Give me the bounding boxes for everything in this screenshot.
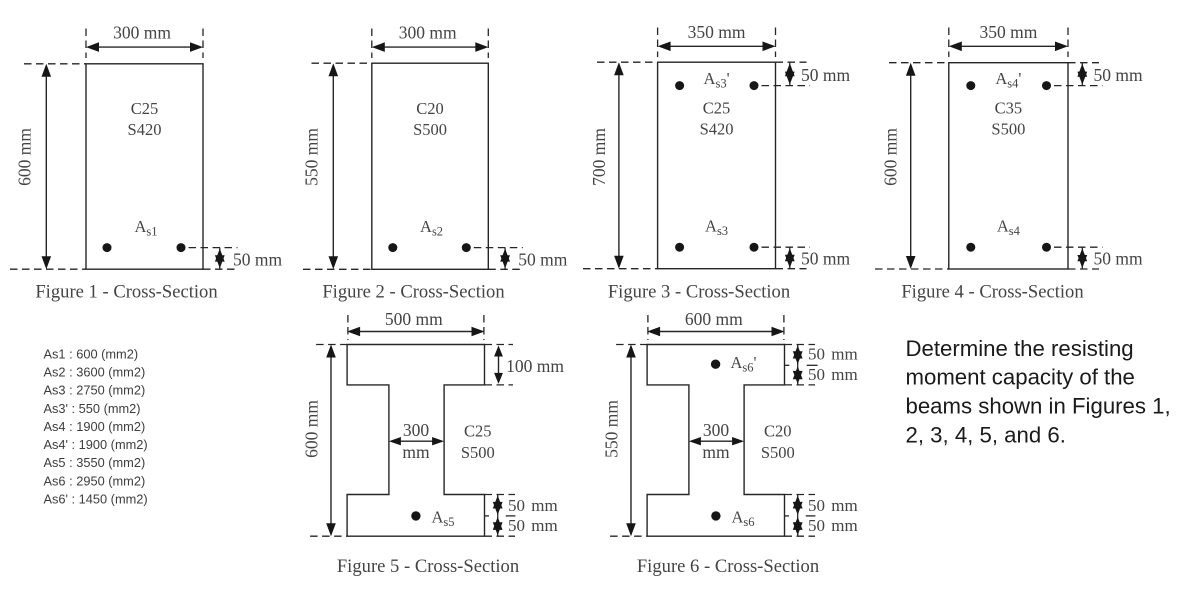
svg-text:C35: C35 — [995, 99, 1023, 118]
svg-text:As5: As5 — [432, 508, 455, 530]
svg-text:50 mm: 50 mm — [801, 248, 850, 268]
svg-text:300 mm: 300 mm — [399, 23, 457, 43]
svg-text:As2: As2 — [420, 217, 443, 239]
svg-text:As4': As4' — [995, 69, 1021, 91]
svg-text:Determine the resisting: Determine the resisting — [906, 336, 1134, 361]
svg-text:beams shown in Figures 1,: beams shown in Figures 1, — [906, 394, 1171, 419]
svg-text:C25: C25 — [464, 422, 492, 441]
svg-text:As4' : 1900 (mm2): As4' : 1900 (mm2) — [44, 437, 148, 452]
svg-text:As6: As6 — [732, 508, 755, 530]
svg-text:550 mm: 550 mm — [302, 128, 322, 186]
svg-text:S420: S420 — [700, 119, 734, 138]
svg-text:moment capacity of the: moment capacity of the — [906, 365, 1135, 390]
svg-text:As1: As1 — [134, 217, 157, 239]
svg-text:C20: C20 — [764, 422, 792, 441]
svg-text:Figure 3 - Cross-Section: Figure 3 - Cross-Section — [608, 281, 791, 302]
svg-text:As2 : 3600 (mm2): As2 : 3600 (mm2) — [44, 364, 146, 379]
svg-text:As6' : 1450 (mm2): As6' : 1450 (mm2) — [44, 492, 148, 507]
svg-text:S420: S420 — [128, 120, 162, 139]
svg-text:As6': As6' — [731, 353, 757, 375]
svg-text:As3 : 2750 (mm2): As3 : 2750 (mm2) — [44, 383, 146, 398]
svg-text:C25: C25 — [703, 99, 731, 118]
svg-text:50 mm: 50 mm — [233, 250, 282, 270]
svg-text:As3' : 550 (mm2): As3' : 550 (mm2) — [44, 401, 141, 416]
svg-text:50 mm: 50 mm — [508, 516, 558, 535]
svg-text:As3': As3' — [704, 69, 730, 91]
svg-text:50 mm: 50 mm — [808, 516, 858, 535]
svg-text:50 mm: 50 mm — [518, 250, 567, 270]
svg-text:As3: As3 — [705, 217, 728, 239]
svg-text:As4 : 1900 (mm2): As4 : 1900 (mm2) — [44, 419, 146, 434]
svg-text:2, 3, 4, 5, and 6.: 2, 3, 4, 5, and 6. — [906, 423, 1066, 448]
svg-text:Figure 2 - Cross-Section: Figure 2 - Cross-Section — [322, 281, 505, 302]
svg-text:600 mm: 600 mm — [15, 128, 35, 186]
svg-text:As4: As4 — [997, 217, 1021, 239]
svg-text:S500: S500 — [991, 119, 1025, 138]
svg-text:350 mm: 350 mm — [979, 22, 1037, 42]
svg-text:C20: C20 — [416, 99, 444, 118]
svg-text:600 mm: 600 mm — [881, 128, 901, 186]
svg-text:50 mm: 50 mm — [808, 365, 858, 384]
svg-text:mm: mm — [702, 442, 730, 462]
svg-text:S500: S500 — [461, 443, 495, 462]
svg-text:50 mm: 50 mm — [1094, 248, 1143, 268]
svg-text:50 mm: 50 mm — [808, 496, 858, 515]
svg-text:As5 : 3550 (mm2): As5 : 3550 (mm2) — [44, 455, 146, 470]
svg-text:600 mm: 600 mm — [302, 400, 322, 458]
svg-text:C25: C25 — [131, 99, 159, 118]
svg-text:As6 : 2950 (mm2): As6 : 2950 (mm2) — [44, 473, 146, 488]
svg-text:S500: S500 — [413, 120, 447, 139]
svg-text:50 mm: 50 mm — [1094, 65, 1143, 85]
svg-text:300 mm: 300 mm — [113, 23, 171, 43]
svg-text:S500: S500 — [761, 443, 795, 462]
svg-text:50 mm: 50 mm — [801, 65, 850, 85]
svg-text:700 mm: 700 mm — [589, 128, 609, 186]
svg-text:600 mm: 600 mm — [685, 309, 743, 329]
svg-text:350 mm: 350 mm — [688, 22, 746, 42]
svg-text:As1 : 600 (mm2): As1 : 600 (mm2) — [44, 346, 139, 361]
svg-text:Figure 1 - Cross-Section: Figure 1 - Cross-Section — [35, 281, 218, 302]
svg-text:Figure 5 - Cross-Section: Figure 5 - Cross-Section — [337, 556, 520, 577]
svg-text:300: 300 — [403, 420, 430, 440]
svg-text:50 mm: 50 mm — [508, 496, 558, 515]
svg-text:50 mm: 50 mm — [808, 345, 858, 364]
svg-text:550 mm: 550 mm — [602, 400, 622, 458]
svg-text:Figure 4 - Cross-Section: Figure 4 - Cross-Section — [901, 281, 1084, 302]
svg-text:100 mm: 100 mm — [506, 356, 564, 376]
svg-text:mm: mm — [402, 442, 430, 462]
svg-text:300: 300 — [703, 420, 730, 440]
svg-text:Figure 6 - Cross-Section: Figure 6 - Cross-Section — [637, 556, 820, 577]
svg-text:500 mm: 500 mm — [385, 309, 443, 329]
